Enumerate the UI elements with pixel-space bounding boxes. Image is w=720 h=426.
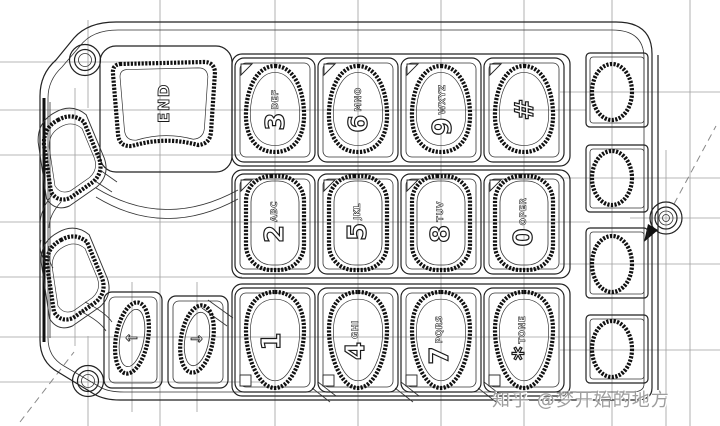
key-row1-shapes <box>246 66 553 152</box>
body-outline <box>40 22 658 400</box>
end-key-shape <box>96 46 238 219</box>
keypad-cad-drawing: END 3 DEF 6 MNO 9 WXYZ # 2 ABC 5 JKL 8 T… <box>0 0 720 426</box>
leader-arrowhead <box>644 224 658 242</box>
key-row2-shapes <box>246 176 553 270</box>
drawing-canvas <box>0 0 720 426</box>
key-row3-shapes <box>246 292 553 388</box>
screw-boss-top-left <box>70 45 101 76</box>
zhihu-watermark: 知乎 @梦开始的地方 <box>492 386 720 412</box>
key-matrix-frames <box>232 54 570 396</box>
nav-key-shapes <box>104 292 228 388</box>
screw-boss-right <box>644 202 682 242</box>
